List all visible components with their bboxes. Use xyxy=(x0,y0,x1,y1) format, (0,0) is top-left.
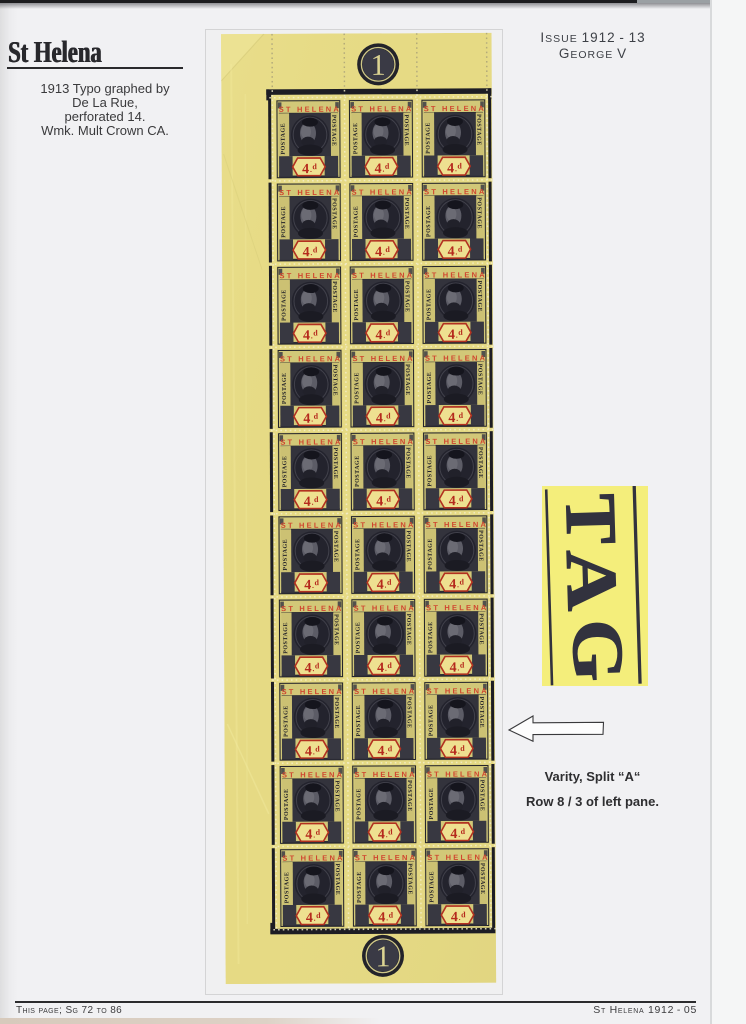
svg-text:T: T xyxy=(550,493,631,545)
svg-text:1: 1 xyxy=(375,940,390,973)
svg-text:A: A xyxy=(551,548,633,611)
svg-text:G: G xyxy=(557,618,639,682)
svg-text:1: 1 xyxy=(371,49,386,82)
